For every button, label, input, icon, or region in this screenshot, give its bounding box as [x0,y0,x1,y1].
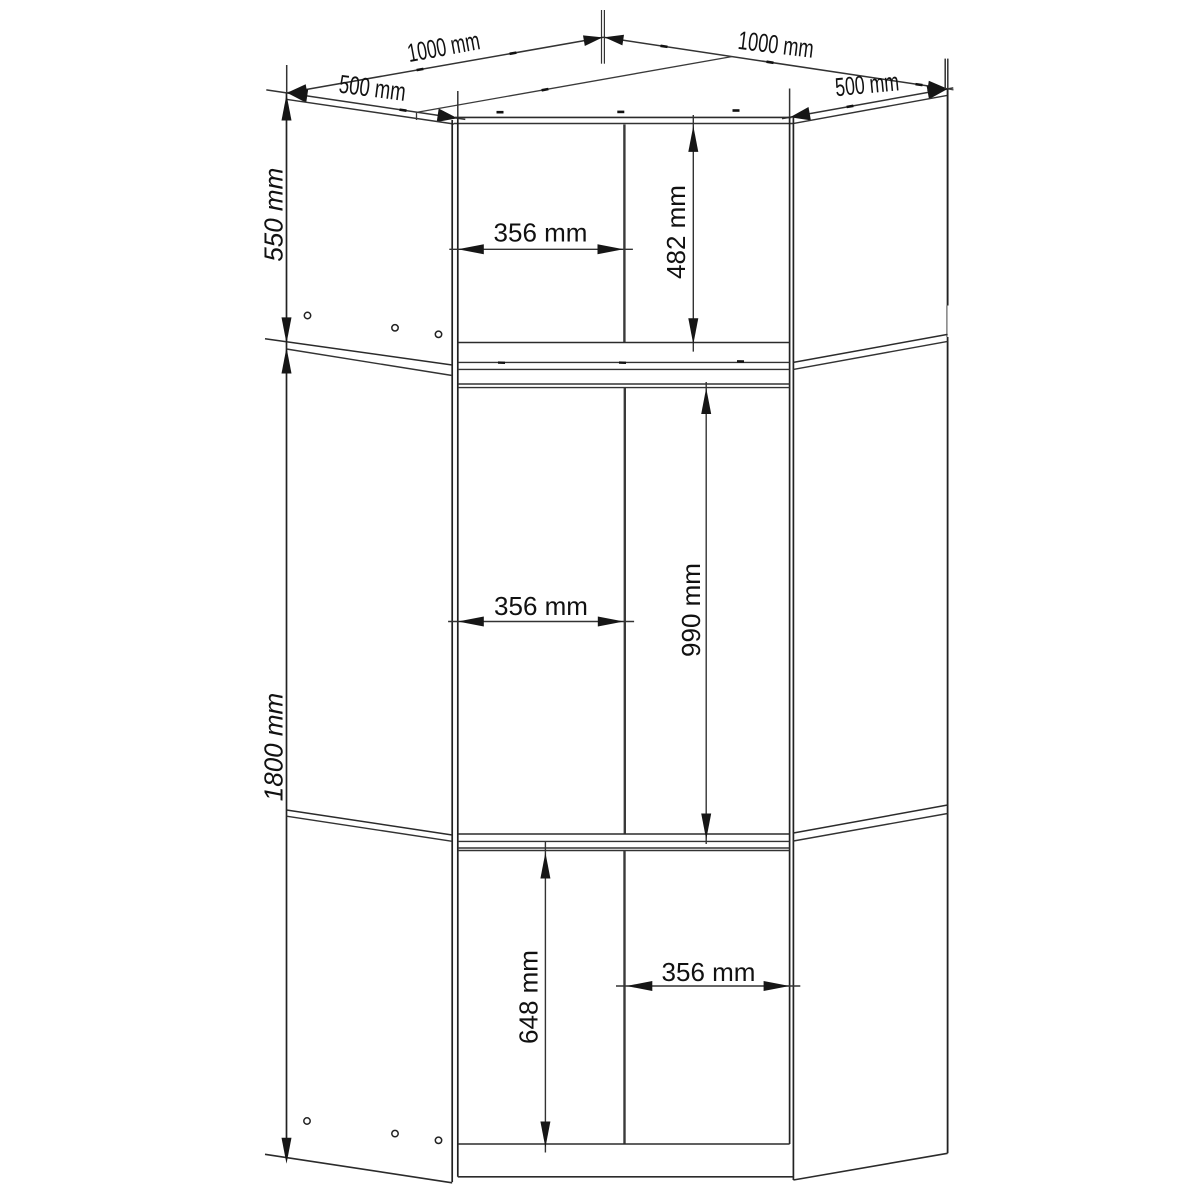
svg-text:482 mm: 482 mm [661,185,691,279]
svg-text:356 mm: 356 mm [494,591,588,621]
svg-text:550 mm: 550 mm [259,168,289,262]
svg-text:648 mm: 648 mm [513,950,543,1044]
svg-text:500 mm: 500 mm [834,66,901,102]
svg-text:990 mm: 990 mm [676,563,706,657]
svg-text:356 mm: 356 mm [662,957,756,987]
svg-text:356 mm: 356 mm [494,218,588,248]
svg-text:1800 mm: 1800 mm [259,693,289,801]
